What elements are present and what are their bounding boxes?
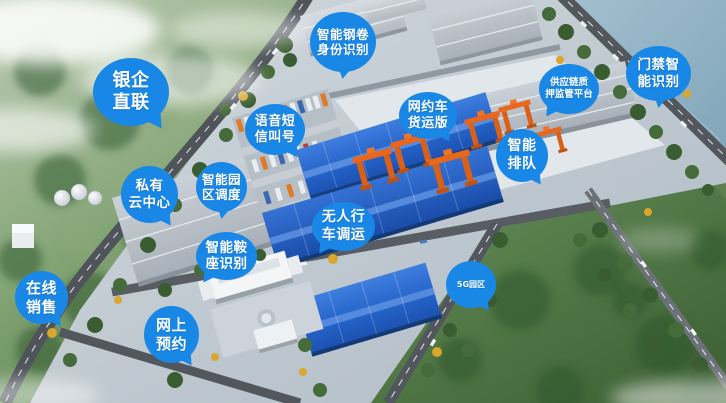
callout-ride-hailing-freight-edition: 网约车 货运版 [399,92,457,139]
callout-bank-enterprise-direct-link: 银企 直联 [93,58,169,126]
callout-text: 供应链质 [550,77,588,89]
callout-text: 区调度 [202,187,241,202]
callout-smart-steel-coil-identity-recognition: 智能钢卷 身份识别 [310,12,376,72]
callout-text: 直联 [113,92,150,114]
callout-text: 预约 [156,335,187,353]
callout-text: 车调运 [322,227,366,244]
callout-text: 智能园 [202,172,241,187]
callout-supply-chain-pledge-supervision-platform: 供应链质 押监管平台 [539,64,599,114]
callout-smart-saddle-recognition: 智能鞍 座识别 [196,232,257,280]
callout-text: 货运版 [408,116,449,132]
callout-text: 智能鞍 [206,240,248,256]
callout-text: 5G园区 [457,280,485,290]
callout-text: 云中心 [129,195,171,211]
callout-text: 网约车 [408,100,449,116]
callout-text: 智能钢卷 [317,27,369,42]
callout-text: 银企 [113,70,150,92]
callout-voice-sms-number-calling: 语音短 信叫号 [245,104,305,155]
callout-text: 身份识别 [317,42,369,57]
callout-text: 语音短 [255,114,296,130]
callout-online-booking: 网上 预约 [144,306,199,363]
callout-text: 能识别 [638,74,680,90]
callout-online-sales: 在线 销售 [15,271,68,324]
callout-text: 无人行 [322,209,366,226]
callout-smart-queueing: 智能 排队 [496,129,548,182]
callout-text: 网上 [156,316,187,334]
callout-text: 在线 [26,279,57,297]
callout-smart-door-access-recognition: 门禁智 能识别 [626,46,691,101]
callout-text: 私有 [136,178,164,194]
callout-text: 座识别 [206,256,248,272]
callout-text: 销售 [26,298,57,316]
callout-unmanned-overhead-crane-dispatch: 无人行 车调运 [312,202,375,251]
smart-park-aerial-view: 银企 直联 智能钢卷 身份识别 门禁智 能识别 供应链质 押监管平台 语音短 信… [0,0,726,403]
callout-text: 智能 [508,138,537,155]
callout-private-cloud-center: 私有 云中心 [121,166,178,223]
callout-5g-park: 5G园区 [446,261,496,308]
callout-text: 门禁智 [638,57,680,73]
callout-smart-park-dispatching: 智能园 区调度 [196,162,247,212]
callout-text: 押监管平台 [545,89,593,101]
callout-text: 信叫号 [255,130,296,146]
callout-text: 排队 [508,156,537,173]
